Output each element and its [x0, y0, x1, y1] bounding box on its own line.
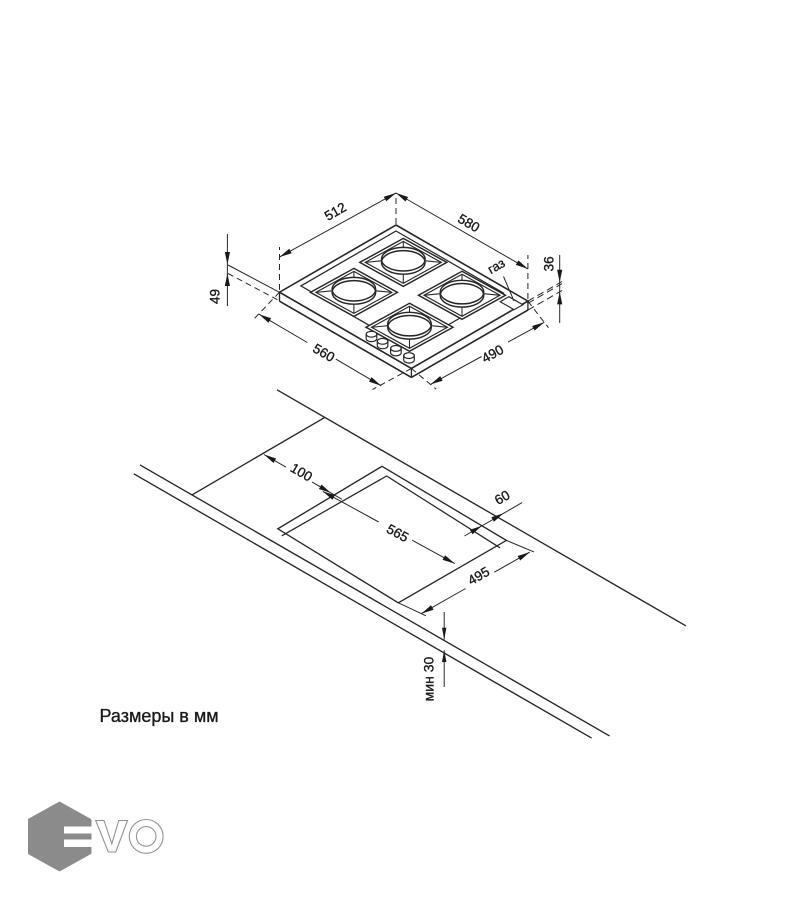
svg-text:Размеры в мм: Размеры в мм [100, 706, 219, 726]
svg-text:36: 36 [542, 256, 557, 271]
svg-text:49: 49 [208, 289, 223, 304]
svg-text:мин 30: мин 30 [421, 656, 437, 701]
